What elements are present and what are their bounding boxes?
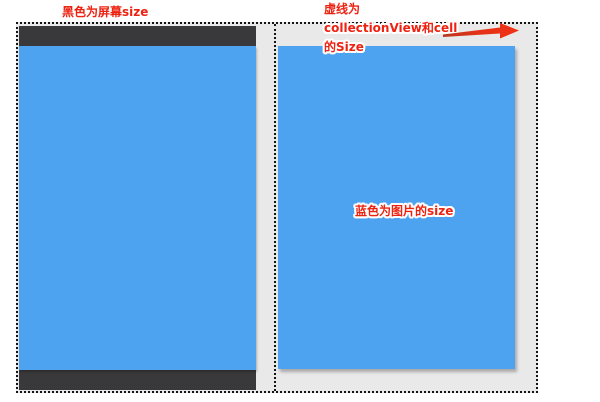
diagram-canvas: 黑色为屏幕size 虚线为 collectionView和cell 的Size … [0, 0, 600, 402]
image-size-label: 蓝色为图片的size [355, 202, 453, 221]
right-arrow-icon [443, 22, 519, 42]
left-image-rect [19, 46, 256, 370]
collectionview-dashed-bounds [16, 22, 538, 393]
collectionview-size-label: 虚线为 collectionView和cell 的Size [324, 0, 457, 57]
collectionview-size-label-line2: collectionView和cell [324, 19, 457, 38]
collectionview-size-label-line3: 的Size [324, 38, 457, 57]
collectionview-size-label-line1: 虚线为 [324, 0, 457, 19]
screen-size-label: 黑色为屏幕size [62, 3, 148, 22]
screen-rect [19, 26, 256, 390]
cell-divider-dashed-line [274, 24, 276, 391]
